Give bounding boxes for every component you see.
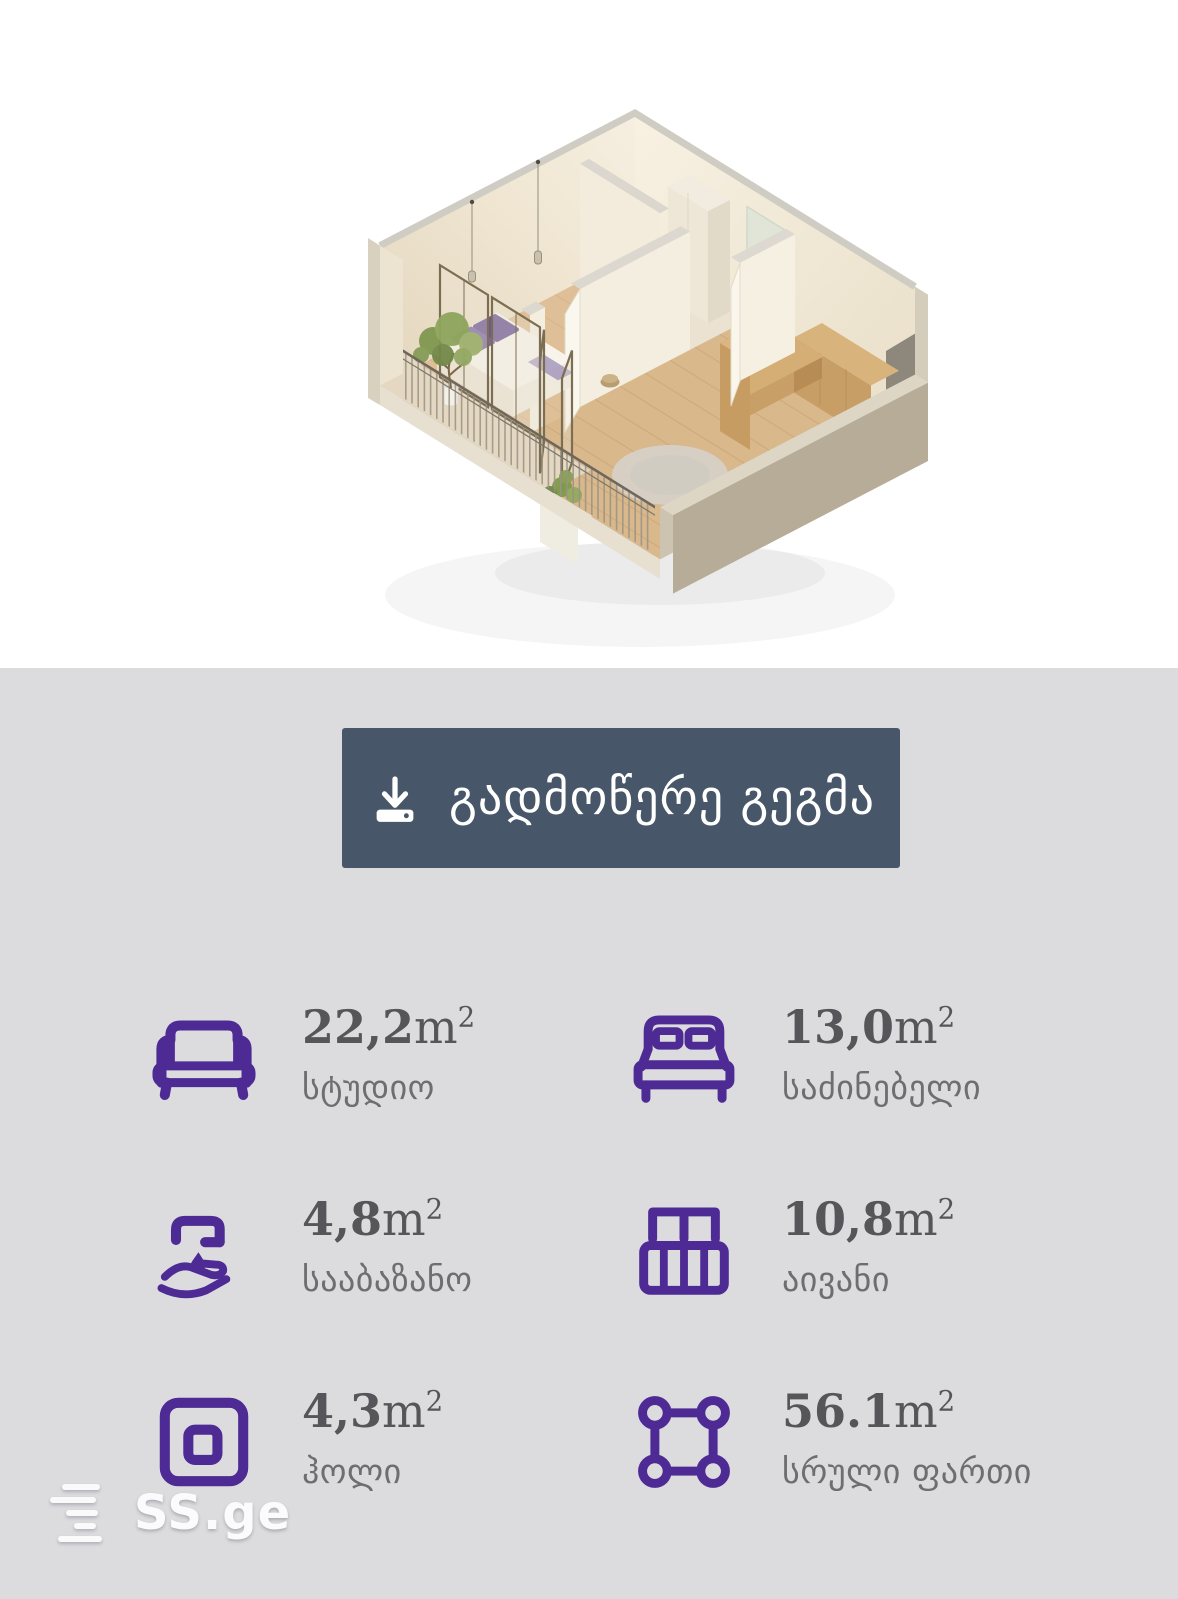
area-icon	[628, 1386, 740, 1498]
stat-value: 13,0m2	[782, 1004, 981, 1050]
ssge-logo-text: SS.ge	[134, 1485, 291, 1541]
stat-value: 4,8m2	[302, 1196, 472, 1242]
stat-item-hall: 4,3m2 ჰოლი	[148, 1386, 628, 1498]
stat-item-total-area: 56.1m2 სრული ფართი	[628, 1386, 1108, 1498]
stat-value: 56.1m2	[782, 1388, 1032, 1434]
ssge-watermark: SS.ge	[50, 1484, 291, 1542]
floor-plan-image	[240, 103, 940, 651]
download-plan-button[interactable]: გადმოწერე გეგმა	[342, 728, 900, 868]
stat-label: სტუდიო	[302, 1068, 475, 1108]
details-section: გადმოწერე გეგმა 22,2m2 სტუდიო	[0, 668, 1178, 1599]
ssge-logo-icon	[50, 1484, 108, 1542]
floor-plan-3d-render	[240, 103, 940, 651]
faucet-hand-icon	[148, 1194, 260, 1306]
stat-value: 10,8m2	[782, 1196, 955, 1242]
stat-value: 22,2m2	[302, 1004, 475, 1050]
stats-grid: 22,2m2 სტუდიო 13,0m2 საძინ	[148, 1002, 1108, 1498]
download-label: გადმოწერე გეგმა	[449, 770, 875, 826]
bed-icon	[628, 1002, 740, 1114]
stat-label: სრული ფართი	[782, 1452, 1032, 1492]
stat-item-bathroom: 4,8m2 სააბაზანო	[148, 1194, 628, 1306]
balcony-icon	[628, 1194, 740, 1306]
stat-label: საძინებელი	[782, 1068, 981, 1108]
stat-item-bedroom: 13,0m2 საძინებელი	[628, 1002, 1108, 1114]
sofa-icon	[148, 1002, 260, 1114]
stat-label: ჰოლი	[302, 1452, 443, 1492]
hall-icon	[148, 1386, 260, 1498]
stat-label: აივანი	[782, 1260, 955, 1300]
stat-item-balcony: 10,8m2 აივანი	[628, 1194, 1108, 1306]
stat-value: 4,3m2	[302, 1388, 443, 1434]
stat-label: სააბაზანო	[302, 1260, 472, 1300]
download-icon	[367, 772, 423, 828]
stat-item-studio: 22,2m2 სტუდიო	[148, 1002, 628, 1114]
